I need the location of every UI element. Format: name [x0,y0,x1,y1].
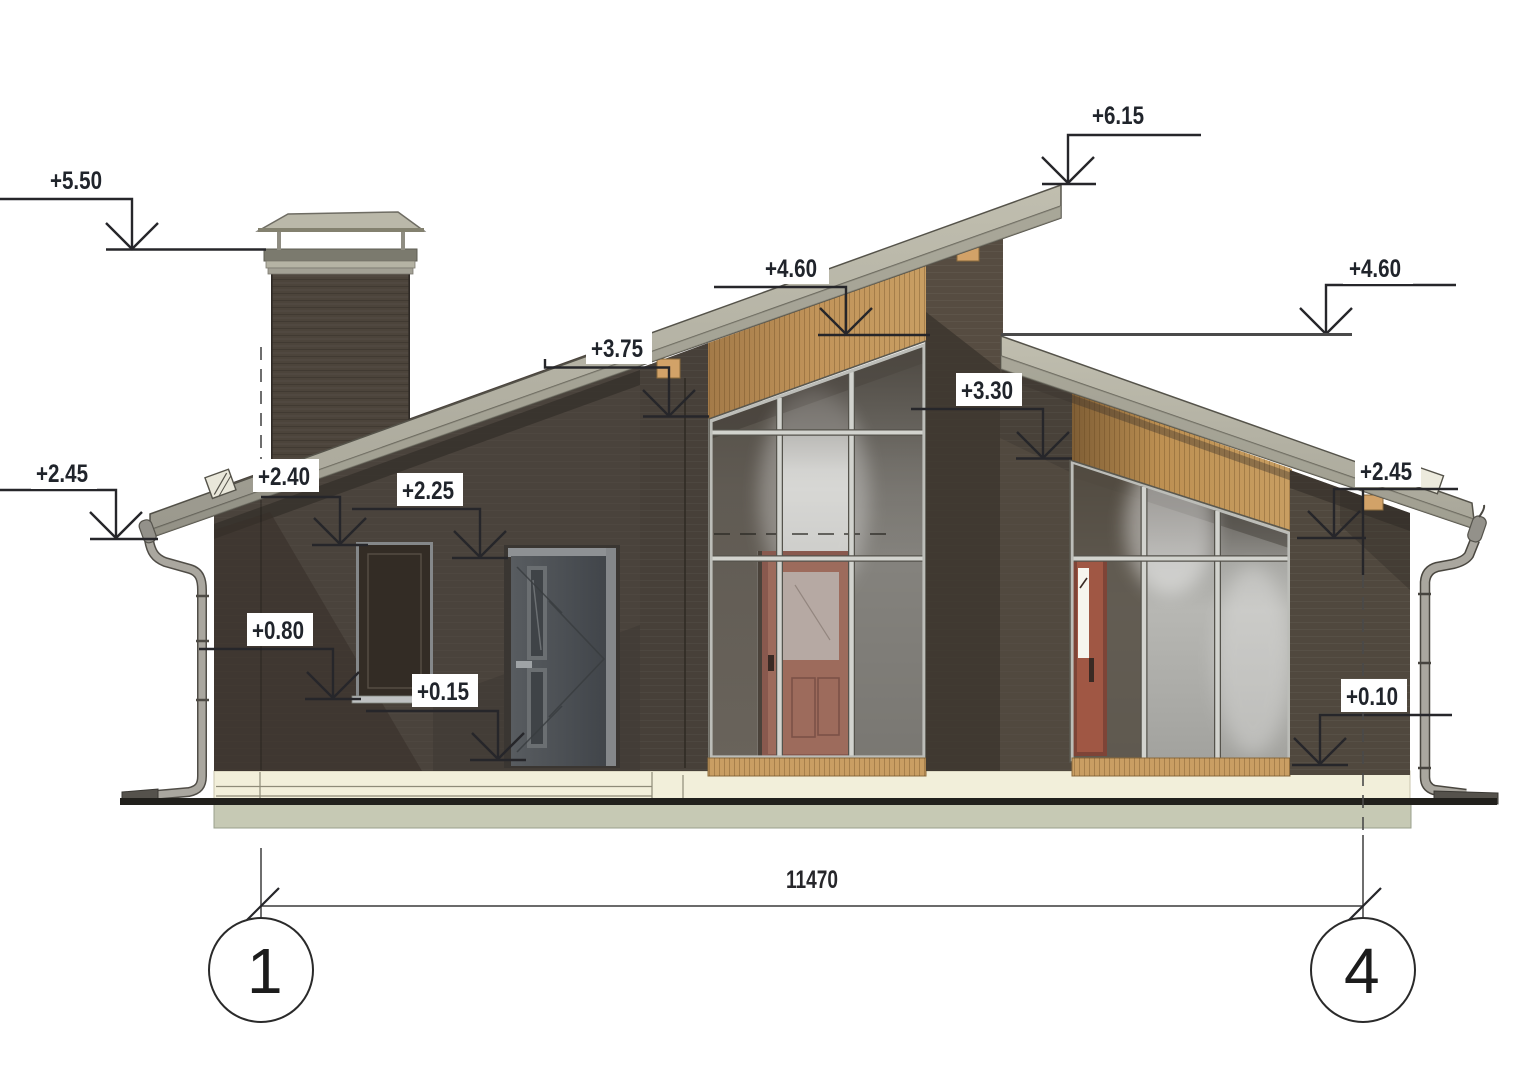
svg-text:+2.45: +2.45 [1360,458,1412,486]
svg-text:+2.40: +2.40 [258,463,310,491]
svg-text:+2.45: +2.45 [36,460,88,488]
svg-text:+3.30: +3.30 [961,377,1013,405]
svg-text:+4.60: +4.60 [765,255,817,283]
svg-text:+0.10: +0.10 [1346,683,1398,711]
svg-text:+4.60: +4.60 [1349,255,1401,283]
svg-text:4: 4 [1344,935,1380,1007]
svg-text:+3.75: +3.75 [591,335,643,363]
svg-text:11470: 11470 [786,866,838,894]
svg-text:1: 1 [247,935,283,1007]
svg-text:+6.15: +6.15 [1092,102,1144,130]
svg-text:+0.80: +0.80 [252,617,304,645]
svg-text:+0.15: +0.15 [417,678,469,706]
svg-text:+2.25: +2.25 [402,477,454,505]
svg-text:+5.50: +5.50 [50,167,102,195]
